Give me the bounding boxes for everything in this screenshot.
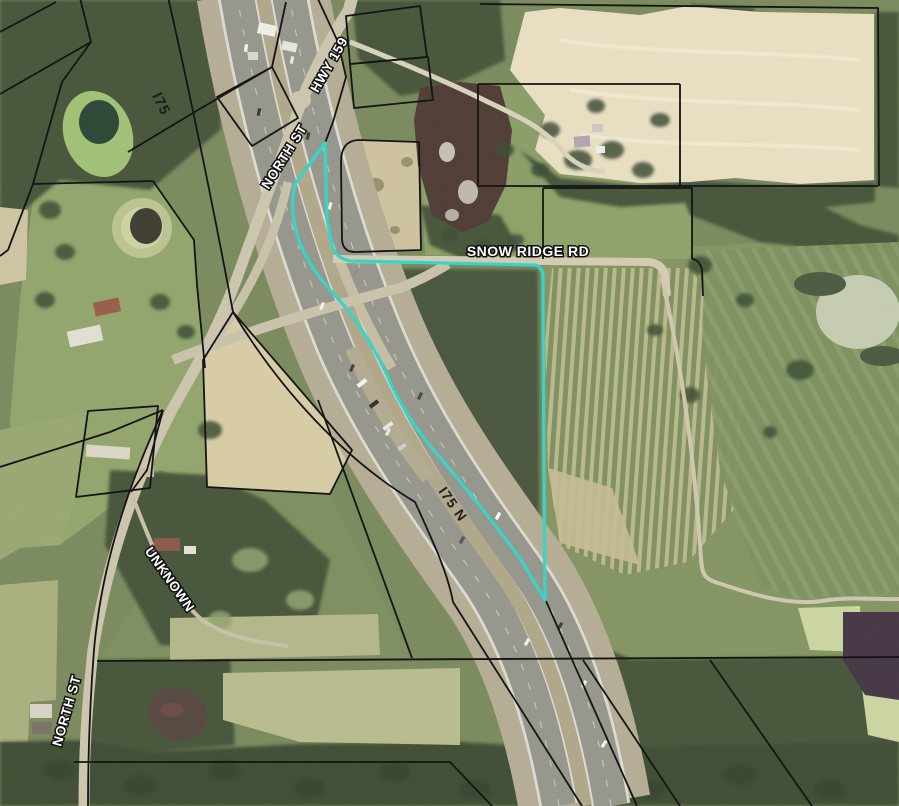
road-label-snow-ridge-rd: SNOW RIDGE RD bbox=[467, 243, 589, 259]
map-canvas[interactable]: I75 NORTH ST HWY 159 SNOW RIDGE RD I75 N… bbox=[0, 0, 899, 806]
aerial-parcel-map: I75 NORTH ST HWY 159 SNOW RIDGE RD I75 N… bbox=[0, 0, 899, 806]
aerial-grain bbox=[0, 0, 899, 806]
